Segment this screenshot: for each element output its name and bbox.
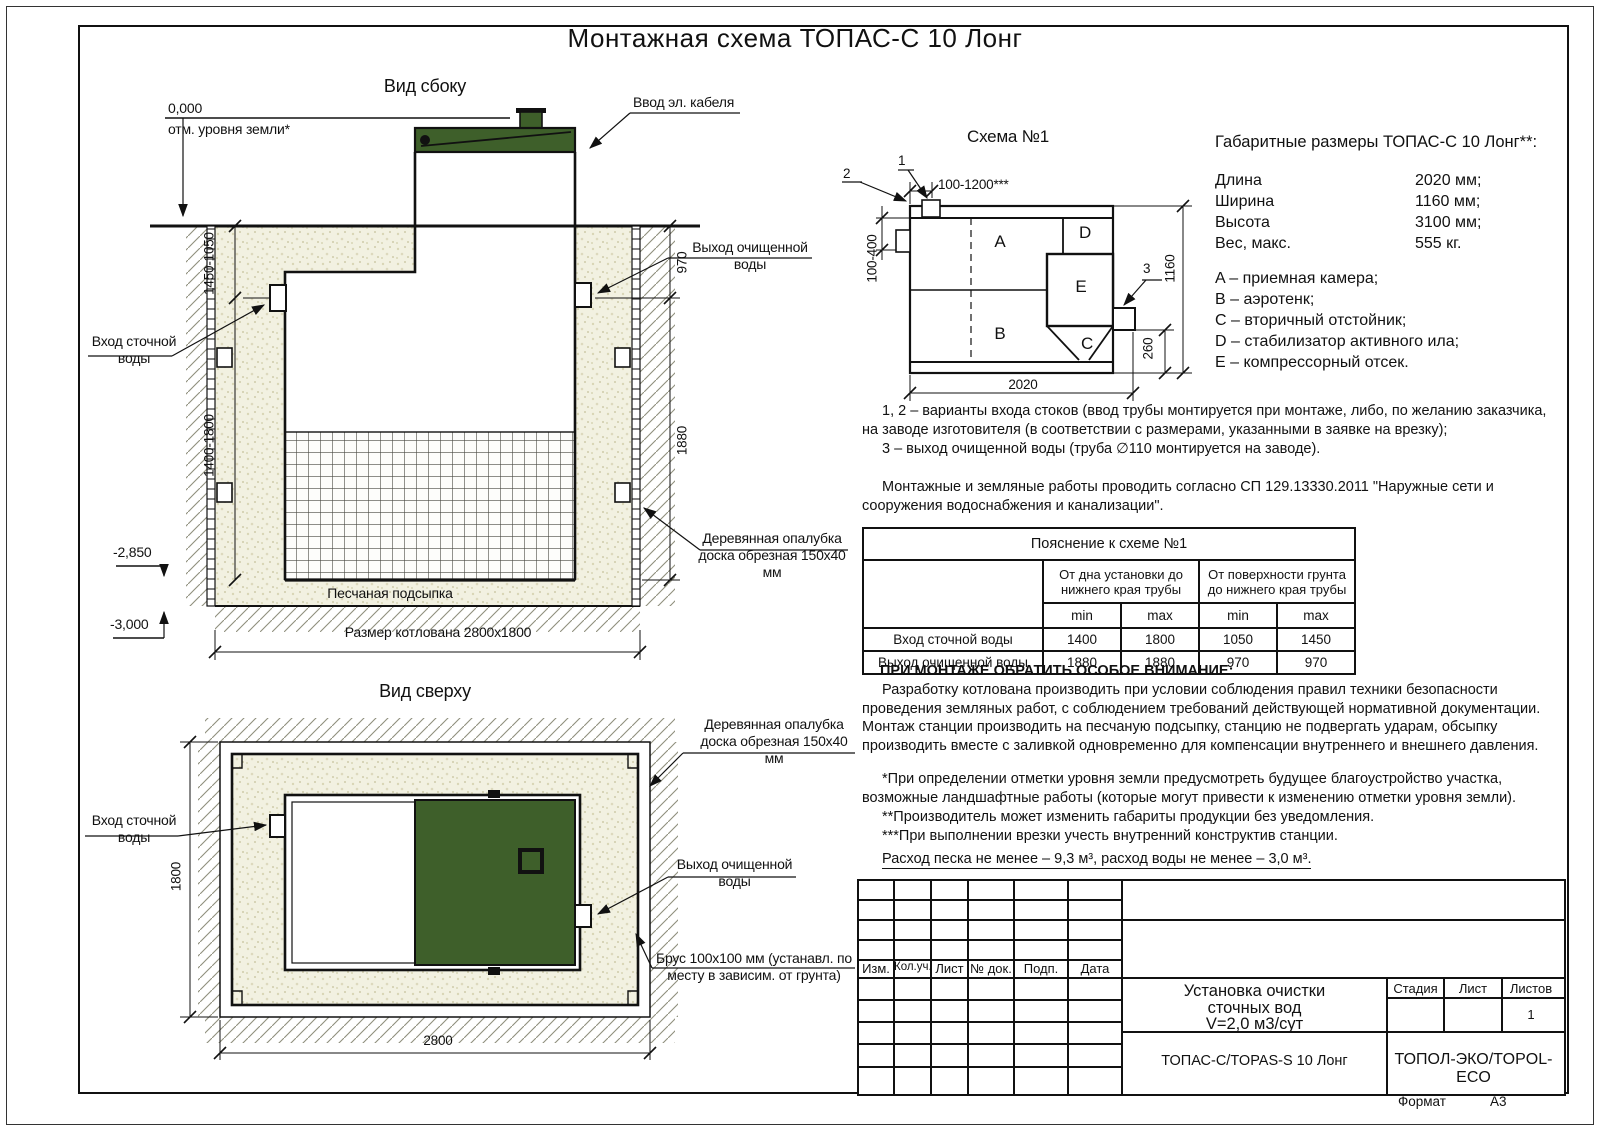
schema-dim-1160-label: 1160 bbox=[1162, 247, 1179, 291]
specs-title: Габаритные размеры ТОПАС-С 10 Лонг**: bbox=[1215, 133, 1537, 152]
tb-col-izm: Изм. bbox=[858, 961, 894, 976]
format-label: Формат bbox=[1398, 1094, 1446, 1109]
explanation-table: Пояснение к схеме №1 От дна установки до… bbox=[862, 527, 1356, 675]
format-value: А3 bbox=[1490, 1094, 1507, 1109]
schema-callout-2: 2 bbox=[843, 165, 850, 182]
compartment-b: B bbox=[990, 325, 1010, 342]
schema-top-stub bbox=[922, 200, 940, 217]
beam-label: Брус 100х100 мм (устанавл. по месту в за… bbox=[648, 950, 860, 984]
elevation-2850-value: -2,850 bbox=[113, 544, 152, 561]
tb-sheets-header: Листов bbox=[1502, 981, 1560, 996]
spec-value-height: 3100 мм; bbox=[1415, 214, 1481, 232]
schema-left-stub bbox=[896, 230, 910, 252]
legend-b: B – аэротенк; bbox=[1215, 291, 1314, 309]
consumption-note: Расход песка не менее – 9,3 м³, расход в… bbox=[882, 851, 1311, 869]
inlet-stub-top bbox=[270, 815, 285, 837]
legend-d: D – стабилизатор активного ила; bbox=[1215, 333, 1459, 351]
attention-body: Разработку котлована производить при усл… bbox=[862, 681, 1568, 755]
outlet-stub bbox=[575, 283, 591, 307]
row-inlet-max2: 1450 bbox=[1277, 628, 1355, 651]
cable-entry-label: Ввод эл. кабеля bbox=[633, 94, 748, 111]
attention-star2: **Производитель может изменить габариты … bbox=[862, 808, 1568, 827]
hatch-top bbox=[205, 718, 675, 742]
tb-sheets-value: 1 bbox=[1502, 1007, 1560, 1022]
hatch-left bbox=[198, 742, 220, 1017]
sand-bed-label: Песчаная подсыпка bbox=[310, 585, 470, 602]
row-inlet-label: Вход сточной воды bbox=[863, 628, 1043, 651]
outlet-label-side: Выход очищенной воды bbox=[690, 239, 810, 273]
compartment-a: A bbox=[990, 233, 1010, 250]
attention-title: ПРИ МОНТАЖЕ ОБРАТИТЬ ОСОБОЕ ВНИМАНИЕ: bbox=[880, 662, 1233, 681]
tb-model: ТОПАС-С/TOPAS-S 10 Лонг bbox=[1122, 1053, 1387, 1069]
tb-col-data: Дата bbox=[1068, 961, 1122, 976]
tb-sheet-header: Лист bbox=[1444, 981, 1502, 996]
dim-1800: 1800 bbox=[168, 852, 185, 902]
tb-doc-line3: V=2,0 м3/сут bbox=[1122, 1015, 1387, 1034]
outlet-stub-top bbox=[575, 905, 591, 927]
row-inlet-min2: 1050 bbox=[1199, 628, 1277, 651]
table-max-2: max bbox=[1277, 603, 1355, 628]
schema-outlet-stub bbox=[1113, 308, 1135, 330]
legend-c: C – вторичный отстойник; bbox=[1215, 312, 1406, 330]
spec-value-length: 2020 мм; bbox=[1415, 172, 1481, 190]
ground-level-label: отм. уровня земли* bbox=[168, 121, 290, 138]
row-inlet-min1: 1400 bbox=[1043, 628, 1121, 651]
drawing-sheet: Монтажная схема ТОПАС-С 10 Лонг bbox=[0, 0, 1600, 1131]
outlet-label-top: Выход очищенной воды bbox=[672, 856, 797, 890]
table-title: Пояснение к схеме №1 bbox=[863, 528, 1355, 560]
schema-callout-3: 3 bbox=[1143, 260, 1150, 277]
schema-title: Схема №1 bbox=[938, 128, 1078, 145]
dim-1450-1050: 1450-1050 bbox=[201, 214, 218, 314]
page-title: Монтажная схема ТОПАС-С 10 Лонг bbox=[555, 30, 1035, 47]
tb-stage-header: Стадия bbox=[1387, 981, 1444, 996]
schema-callout-1: 1 bbox=[898, 152, 905, 169]
row-inlet-max1: 1800 bbox=[1121, 628, 1199, 651]
dim-1880: 1880 bbox=[674, 416, 691, 466]
formwork-label-top: Деревянная опалубка доска обрезная 150x4… bbox=[690, 716, 858, 767]
pit-size-label: Размер котлована 2800x1800 bbox=[338, 624, 538, 641]
table-min-1: min bbox=[1043, 603, 1121, 628]
dim-970: 970 bbox=[674, 243, 691, 283]
attention-star3: ***При выполнении врезки учесть внутренн… bbox=[862, 827, 1568, 846]
compartment-d: D bbox=[1075, 224, 1095, 241]
attention-star1: *При определении отметки уровня земли пр… bbox=[862, 770, 1568, 807]
inlet-stub bbox=[270, 285, 286, 311]
formwork-right bbox=[632, 226, 640, 606]
inlet-label-top: Вход сточной воды bbox=[84, 812, 184, 846]
tb-company: ТОПОЛ-ЭКО/TOPOL-ECO bbox=[1387, 1051, 1560, 1087]
elevation-2850 bbox=[116, 566, 164, 576]
compartment-e: E bbox=[1071, 278, 1091, 295]
table-row: Вход сточной воды 1400 1800 1050 1450 bbox=[863, 628, 1355, 651]
table-min-2: min bbox=[1199, 603, 1277, 628]
station-neck bbox=[415, 152, 575, 274]
spec-label-length: Длина bbox=[1215, 172, 1262, 190]
spec-label-weight: Вес, макс. bbox=[1215, 235, 1291, 253]
schema-dim-260-label: 260 bbox=[1140, 329, 1157, 369]
green-lid-top bbox=[415, 800, 575, 965]
tb-col-list: Лист bbox=[931, 961, 968, 976]
schema-dim-left-label: 100-400 bbox=[864, 225, 881, 293]
schema-dim-2020-label: 2020 bbox=[998, 376, 1048, 393]
green-lid bbox=[415, 108, 575, 152]
legend-e: E – компрессорный отсек. bbox=[1215, 354, 1409, 372]
formwork-label-side: Деревянная опалубка доска обрезная 150x4… bbox=[697, 530, 847, 581]
station-lower-mesh bbox=[285, 432, 575, 580]
elevation-3000-value: -3,000 bbox=[110, 616, 149, 633]
lid-hatch-square bbox=[520, 850, 542, 872]
spec-label-width: Ширина bbox=[1215, 193, 1274, 211]
note-sp: Монтажные и земляные работы проводить со… bbox=[862, 478, 1562, 515]
dim-1400-1800: 1400-1800 bbox=[201, 396, 218, 496]
elevation-zero-value: 0,000 bbox=[168, 100, 202, 117]
tb-col-ndok: № док. bbox=[968, 961, 1014, 976]
compartment-c: C bbox=[1077, 335, 1097, 352]
spec-value-weight: 555 кг. bbox=[1415, 235, 1461, 253]
row-outlet-max2: 970 bbox=[1277, 651, 1355, 674]
spec-value-width: 1160 мм; bbox=[1415, 193, 1480, 211]
top-view-title: Вид сверху bbox=[355, 683, 495, 700]
schema-dim-top-label: 100-1200*** bbox=[938, 176, 1048, 193]
spec-label-height: Высота bbox=[1215, 214, 1270, 232]
tb-col-podp: Подп. bbox=[1014, 961, 1068, 976]
side-view-drawing bbox=[80, 80, 860, 680]
inlet-label-side: Вход сточной воды bbox=[84, 333, 184, 367]
note-outlet: 3 – выход очищенной воды (труба ∅110 мон… bbox=[862, 440, 1562, 459]
table-group-2: От поверхности грунта до нижнего края тр… bbox=[1199, 560, 1355, 603]
tb-col-koluch: Кол.уч. bbox=[894, 961, 931, 973]
table-group-1: От дна установки до нижнего края трубы bbox=[1043, 560, 1199, 603]
note-inlet-variants: 1, 2 – варианты входа стоков (ввод трубы… bbox=[862, 402, 1562, 439]
station-body bbox=[285, 272, 575, 432]
legend-a: A – приемная камера; bbox=[1215, 270, 1378, 288]
side-view-title: Вид сбоку bbox=[355, 78, 495, 95]
table-max-1: max bbox=[1121, 603, 1199, 628]
dim-2800: 2800 bbox=[408, 1032, 468, 1049]
